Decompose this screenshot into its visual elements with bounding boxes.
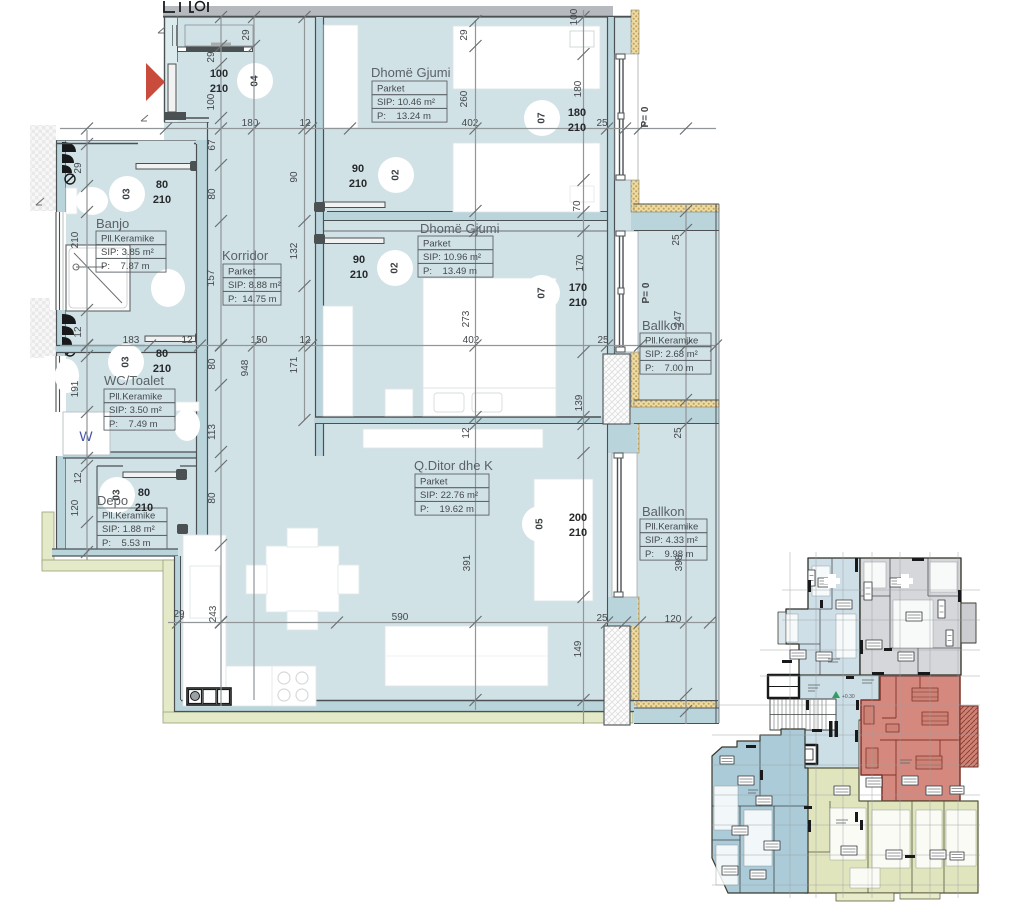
svg-text:12: 12 <box>73 472 84 484</box>
svg-text:80: 80 <box>207 188 218 200</box>
svg-text:05: 05 <box>535 518 546 530</box>
svg-text:180: 180 <box>242 118 259 129</box>
svg-text:120: 120 <box>665 614 682 625</box>
svg-text:90: 90 <box>352 163 364 175</box>
svg-text:SIP: 3.50 m²: SIP: 3.50 m² <box>109 405 162 416</box>
svg-text:90: 90 <box>289 171 300 183</box>
svg-text:SIP: 8.88 m²: SIP: 8.88 m² <box>228 280 281 291</box>
svg-text:80: 80 <box>207 492 218 504</box>
svg-text:SIP: 2.68 m²: SIP: 2.68 m² <box>645 349 698 360</box>
svg-text:183: 183 <box>123 335 140 346</box>
svg-text:SIP: 10.96 m²: SIP: 10.96 m² <box>423 252 481 263</box>
svg-text:67: 67 <box>207 139 218 151</box>
svg-text:12: 12 <box>73 326 84 338</box>
svg-text:391: 391 <box>462 554 473 571</box>
svg-text:210: 210 <box>349 178 367 190</box>
svg-text:80: 80 <box>138 487 150 499</box>
svg-text:113: 113 <box>207 424 218 440</box>
svg-text:70: 70 <box>572 200 583 212</box>
svg-text:29: 29 <box>206 51 217 63</box>
svg-text:273: 273 <box>461 310 472 327</box>
svg-text:Dhomë Gjumi: Dhomë Gjumi <box>420 221 500 236</box>
svg-text:210: 210 <box>350 269 368 281</box>
svg-text:590: 590 <box>392 612 409 623</box>
svg-text:Pll.Keramike: Pll.Keramike <box>101 234 154 245</box>
svg-text:100: 100 <box>210 68 228 80</box>
svg-text:12: 12 <box>461 427 472 439</box>
svg-text:100: 100 <box>206 93 217 110</box>
svg-text:191: 191 <box>70 380 81 397</box>
svg-text:170: 170 <box>569 282 587 294</box>
svg-text:12: 12 <box>181 335 193 346</box>
svg-text:Ballkon: Ballkon <box>642 504 685 519</box>
svg-text:P: 9.98 m: P: 9.98 m <box>645 549 694 560</box>
svg-text:210: 210 <box>210 83 228 95</box>
svg-text:Korridor: Korridor <box>222 248 269 263</box>
svg-text:P: 7.00 m: P: 7.00 m <box>645 363 694 374</box>
svg-text:Pll.Keramike: Pll.Keramike <box>109 392 162 403</box>
svg-text:P: 19.62 m: P: 19.62 m <box>420 504 474 515</box>
svg-text:25: 25 <box>596 613 608 624</box>
svg-text:29: 29 <box>459 29 470 41</box>
svg-text:132: 132 <box>289 242 300 259</box>
svg-text:243: 243 <box>208 605 219 622</box>
svg-text:171: 171 <box>289 356 300 373</box>
svg-text:P= 0: P= 0 <box>641 282 652 303</box>
svg-text:180: 180 <box>568 107 586 119</box>
svg-text:25: 25 <box>671 234 682 246</box>
svg-text:02: 02 <box>391 169 402 181</box>
svg-text:139: 139 <box>574 394 585 411</box>
svg-text:210: 210 <box>569 297 587 309</box>
svg-text:80: 80 <box>207 358 218 370</box>
svg-text:Parket: Parket <box>228 267 256 278</box>
svg-text:07: 07 <box>537 112 548 124</box>
svg-text:WC/Toalet: WC/Toalet <box>104 373 164 388</box>
svg-text:04: 04 <box>250 75 261 87</box>
svg-text:150: 150 <box>251 335 268 346</box>
svg-text:170: 170 <box>575 254 586 271</box>
svg-text:P: 7.87 m: P: 7.87 m <box>101 261 150 272</box>
svg-text:Parket: Parket <box>420 477 448 488</box>
svg-text:P: 13.24 m: P: 13.24 m <box>377 111 431 122</box>
svg-text:SIP: 4.33 m²: SIP: 4.33 m² <box>645 535 698 546</box>
svg-text:Pll.Keramike: Pll.Keramike <box>645 522 698 533</box>
svg-text:Parket: Parket <box>377 84 405 95</box>
svg-text:Dhomë Gjumi: Dhomë Gjumi <box>371 65 451 80</box>
svg-text:SIP: 3.85 m²: SIP: 3.85 m² <box>101 247 154 258</box>
svg-text:P= 0: P= 0 <box>640 106 651 127</box>
svg-text:Q.Ditor dhe K: Q.Ditor dhe K <box>414 458 493 473</box>
svg-text:29: 29 <box>73 162 84 174</box>
svg-text:210: 210 <box>135 502 153 514</box>
svg-text:P: 14.75 m: P: 14.75 m <box>228 294 277 305</box>
svg-text:Ballkon: Ballkon <box>642 318 685 333</box>
svg-text:29: 29 <box>241 29 252 41</box>
svg-text:03: 03 <box>122 188 133 200</box>
svg-text:210: 210 <box>153 194 171 206</box>
svg-text:948: 948 <box>240 359 251 376</box>
svg-text:90: 90 <box>353 254 365 266</box>
svg-text:210: 210 <box>153 363 171 375</box>
svg-text:25: 25 <box>673 427 684 439</box>
svg-text:W: W <box>79 428 93 444</box>
svg-text:120: 120 <box>70 499 81 516</box>
svg-text:07: 07 <box>537 287 548 299</box>
svg-text:02: 02 <box>390 262 401 274</box>
svg-text:149: 149 <box>573 640 584 657</box>
svg-text:Pll.Keramike: Pll.Keramike <box>645 336 698 347</box>
svg-text:180: 180 <box>573 80 584 97</box>
svg-text:25: 25 <box>597 335 609 346</box>
svg-text:SIP: 22.76 m²: SIP: 22.76 m² <box>420 490 478 501</box>
svg-text:260: 260 <box>459 90 470 107</box>
svg-text:29: 29 <box>173 609 185 620</box>
svg-text:80: 80 <box>156 348 168 360</box>
svg-text:210: 210 <box>568 122 586 134</box>
svg-text:200: 200 <box>569 512 587 524</box>
svg-text:+0.30: +0.30 <box>842 694 855 700</box>
svg-text:SIP: 10.46 m²: SIP: 10.46 m² <box>377 97 435 108</box>
svg-text:100: 100 <box>569 8 580 25</box>
svg-text:SIP: 1.88 m²: SIP: 1.88 m² <box>102 524 155 535</box>
svg-text:157: 157 <box>206 269 217 286</box>
svg-text:80: 80 <box>156 179 168 191</box>
svg-text:Parket: Parket <box>423 239 451 250</box>
svg-text:210: 210 <box>70 231 81 248</box>
svg-text:P: 7.49 m: P: 7.49 m <box>109 419 158 430</box>
svg-text:03: 03 <box>121 356 132 368</box>
svg-text:25: 25 <box>596 118 608 129</box>
svg-text:210: 210 <box>569 527 587 539</box>
svg-text:P: 13.49 m: P: 13.49 m <box>423 266 477 277</box>
svg-text:Banjo: Banjo <box>96 216 129 231</box>
svg-text:Depo: Depo <box>97 493 128 508</box>
svg-text:P: 5.53 m: P: 5.53 m <box>102 538 151 549</box>
